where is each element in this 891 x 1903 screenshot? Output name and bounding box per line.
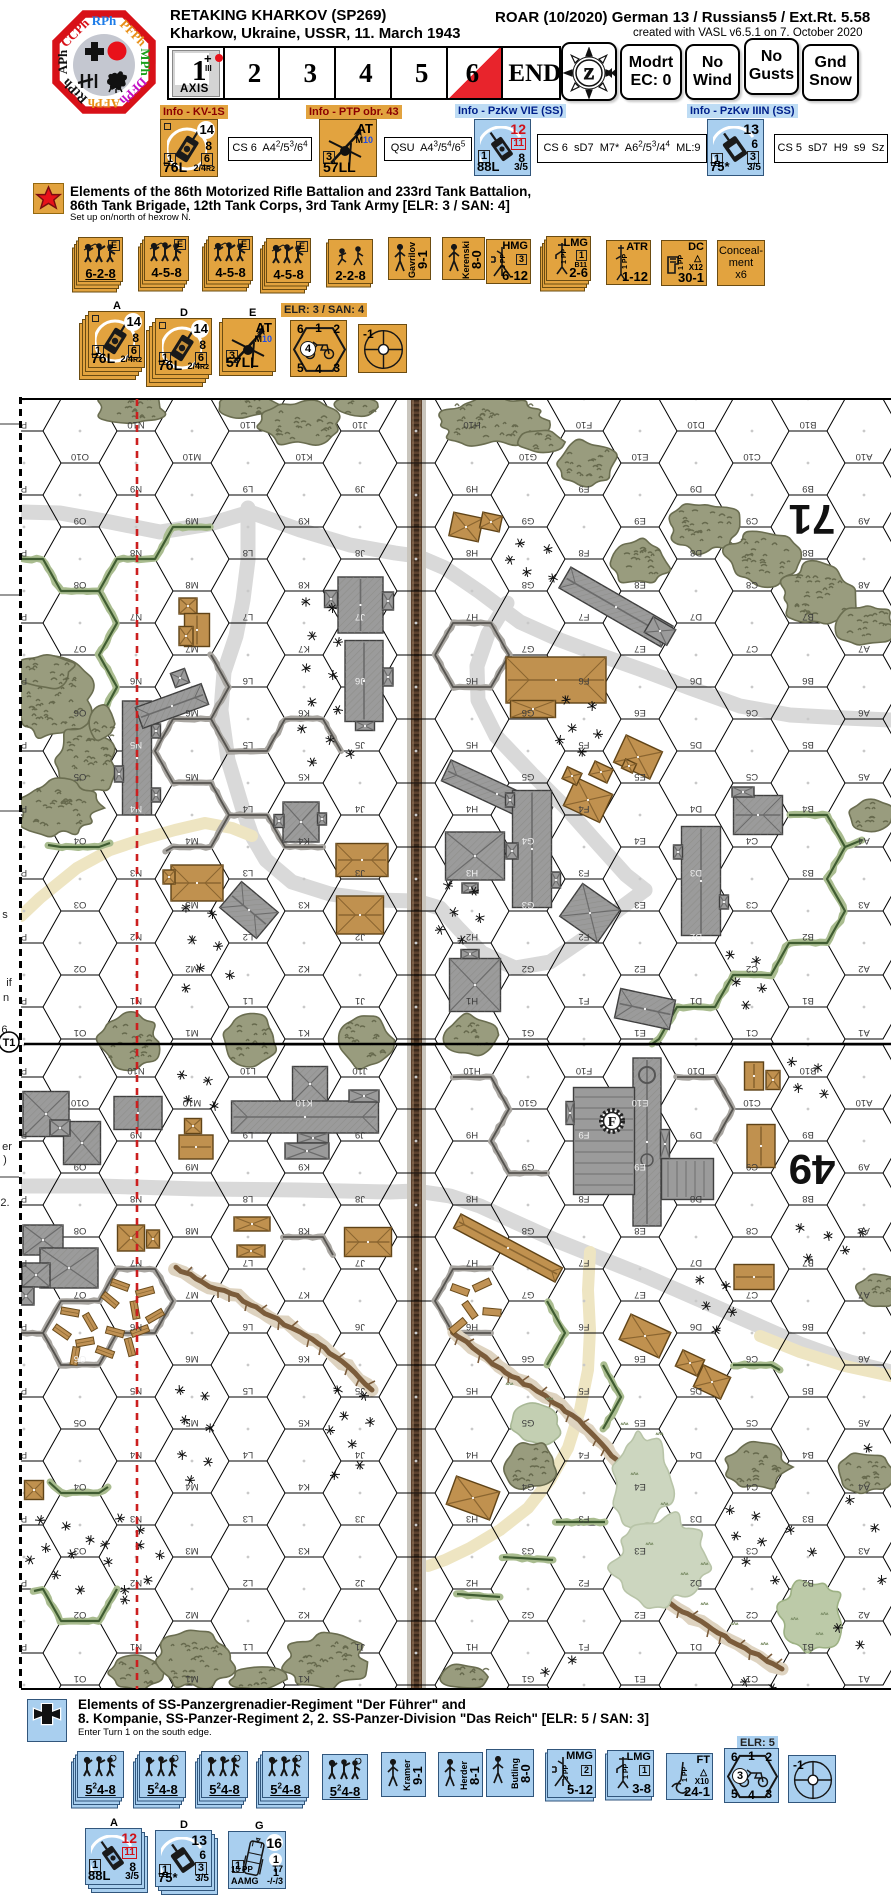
svg-text:H7: H7 [466, 1257, 478, 1268]
svg-text:H3: H3 [466, 1513, 478, 1524]
svg-text:K5: K5 [298, 771, 310, 782]
svg-text:K3: K3 [298, 1545, 310, 1556]
svg-text:J3: J3 [355, 867, 365, 878]
svg-text:H1: H1 [466, 1641, 478, 1652]
svg-text:2.: 2. [0, 1197, 9, 1209]
svg-text:C3: C3 [746, 899, 758, 910]
svg-text:L5: L5 [243, 1385, 254, 1396]
svg-text:A2: A2 [858, 1609, 870, 1620]
svg-text:H10: H10 [463, 419, 480, 430]
svg-text:K4: K4 [298, 1481, 310, 1492]
svg-text:s: s [2, 909, 8, 921]
svg-text:L2: L2 [243, 931, 254, 942]
svg-text:n: n [3, 992, 9, 1004]
svg-text:M5: M5 [185, 771, 198, 782]
svg-text:G5: G5 [522, 771, 535, 782]
svg-text:F8: F8 [578, 1193, 589, 1204]
svg-text:F3: F3 [578, 867, 589, 878]
svg-text:E2: E2 [634, 1609, 646, 1620]
svg-text:H9: H9 [466, 1129, 478, 1140]
svg-text:A6: A6 [858, 707, 870, 718]
svg-text:O7: O7 [74, 643, 87, 654]
svg-text:K4: K4 [298, 835, 310, 846]
svg-text:G1: G1 [522, 1673, 535, 1684]
svg-text:C5: C5 [746, 771, 758, 782]
svg-text:B5: B5 [802, 1385, 814, 1396]
svg-text:O1: O1 [74, 1673, 87, 1684]
svg-text:A8: A8 [858, 579, 870, 590]
svg-text:M1: M1 [185, 1673, 198, 1684]
svg-text:C7: C7 [746, 643, 758, 654]
svg-text:B7: B7 [802, 611, 814, 622]
svg-text:L4: L4 [243, 803, 254, 814]
svg-text:M3: M3 [185, 1545, 198, 1556]
svg-text:J2: J2 [355, 1577, 365, 1588]
svg-text:M10: M10 [183, 451, 201, 462]
svg-text:F10: F10 [576, 419, 592, 430]
svg-text:L10: L10 [240, 419, 256, 430]
svg-text:H8: H8 [466, 1193, 478, 1204]
svg-text:M8: M8 [185, 1225, 198, 1236]
svg-text:M9: M9 [185, 515, 198, 526]
svg-text:J10: J10 [352, 1065, 367, 1076]
svg-text:J7: J7 [355, 1257, 365, 1268]
svg-text:D1: D1 [690, 1641, 702, 1652]
svg-text:L7: L7 [243, 1257, 254, 1268]
svg-text:J1: J1 [355, 1641, 365, 1652]
svg-text:A8: A8 [858, 1225, 870, 1236]
svg-text:D6: D6 [690, 675, 702, 686]
svg-text:L8: L8 [243, 1193, 254, 1204]
svg-text:G3: G3 [522, 1545, 535, 1556]
svg-text:C4: C4 [746, 835, 758, 846]
svg-text:H2: H2 [466, 1577, 478, 1588]
svg-text:D10: D10 [687, 1065, 704, 1076]
svg-text:G7: G7 [522, 1289, 535, 1300]
svg-text:O2: O2 [74, 963, 87, 974]
svg-text:E8: E8 [634, 579, 646, 590]
svg-text:D9: D9 [690, 483, 702, 494]
svg-text:J5: J5 [355, 739, 365, 750]
svg-text:L2: L2 [243, 1577, 254, 1588]
svg-text:A5: A5 [858, 771, 870, 782]
svg-text:K2: K2 [298, 1609, 310, 1620]
svg-text:H7: H7 [466, 611, 478, 622]
svg-text:A3: A3 [858, 899, 870, 910]
svg-text:J9: J9 [355, 1129, 365, 1140]
svg-text:J8: J8 [355, 1193, 365, 1204]
svg-text:E10: E10 [632, 451, 649, 462]
svg-text:J2: J2 [355, 931, 365, 942]
svg-text:E6: E6 [634, 1353, 646, 1364]
svg-text:M2: M2 [185, 1609, 198, 1620]
svg-text:C2: C2 [746, 1609, 758, 1620]
svg-text:er: er [2, 1141, 12, 1153]
svg-text:if: if [6, 977, 12, 989]
svg-text:E1: E1 [634, 1673, 646, 1684]
svg-text:L10: L10 [240, 1065, 256, 1076]
svg-text:O8: O8 [74, 1225, 87, 1236]
svg-text:G10: G10 [519, 451, 537, 462]
svg-text:K1: K1 [298, 1673, 310, 1684]
svg-text:B9: B9 [802, 1129, 814, 1140]
svg-text:L8: L8 [243, 547, 254, 558]
svg-text:F6: F6 [578, 1321, 589, 1332]
svg-text:J5: J5 [355, 1385, 365, 1396]
svg-text:O6: O6 [74, 707, 87, 718]
svg-text:B8: B8 [802, 1193, 814, 1204]
svg-text:O1: O1 [74, 1027, 87, 1038]
svg-text:F4: F4 [578, 803, 589, 814]
svg-text:G4: G4 [522, 835, 535, 846]
svg-text:H5: H5 [466, 739, 478, 750]
svg-text:G5: G5 [522, 1417, 535, 1428]
svg-text:M7: M7 [185, 1289, 198, 1300]
svg-text:A1: A1 [858, 1673, 870, 1684]
svg-text:F2: F2 [578, 1577, 589, 1588]
svg-text:E7: E7 [634, 1289, 646, 1300]
svg-text:K5: K5 [298, 1417, 310, 1428]
svg-text:K10: K10 [296, 451, 313, 462]
svg-text:O10: O10 [71, 451, 89, 462]
svg-text:G6: G6 [522, 707, 535, 718]
svg-text:E10: E10 [632, 1097, 649, 1108]
svg-text:D5: D5 [690, 1385, 702, 1396]
svg-text:H4: H4 [466, 803, 478, 814]
svg-text:A9: A9 [858, 515, 870, 526]
svg-text:L1: L1 [243, 1641, 254, 1652]
svg-text:B9: B9 [802, 483, 814, 494]
svg-text:F: F [608, 1115, 617, 1130]
svg-text:O9: O9 [74, 515, 87, 526]
svg-text:C8: C8 [746, 579, 758, 590]
svg-text:D6: D6 [690, 1321, 702, 1332]
svg-text:G2: G2 [522, 963, 535, 974]
svg-text:71: 71 [789, 496, 836, 543]
svg-text:F5: F5 [578, 739, 589, 750]
svg-text:D5: D5 [690, 739, 702, 750]
svg-text:E3: E3 [634, 899, 646, 910]
svg-text:F9: F9 [578, 483, 589, 494]
svg-text:J9: J9 [355, 483, 365, 494]
svg-text:D7: D7 [690, 611, 702, 622]
svg-text:C4: C4 [746, 1481, 758, 1492]
svg-text:K6: K6 [298, 707, 310, 718]
svg-text:C1: C1 [746, 1673, 758, 1684]
svg-text:G3: G3 [522, 899, 535, 910]
svg-text:6.: 6. [1, 1024, 10, 1036]
svg-text:B1: B1 [802, 995, 814, 1006]
svg-text:D2: D2 [690, 931, 702, 942]
svg-text:49: 49 [789, 1146, 836, 1193]
svg-text:M6: M6 [185, 707, 198, 718]
svg-text:C10: C10 [743, 1097, 760, 1108]
svg-text:K8: K8 [298, 1225, 310, 1236]
svg-text:L9: L9 [243, 483, 254, 494]
svg-text:A10: A10 [856, 451, 873, 462]
svg-text:B3: B3 [802, 1513, 814, 1524]
svg-text:D1: D1 [690, 995, 702, 1006]
svg-text:L1: L1 [243, 995, 254, 1006]
svg-text:O3: O3 [74, 1545, 87, 1556]
svg-text:D7: D7 [690, 1257, 702, 1268]
svg-text:E4: E4 [634, 1481, 646, 1492]
svg-text:C5: C5 [746, 1417, 758, 1428]
svg-text:A1: A1 [858, 1027, 870, 1038]
svg-text:K2: K2 [298, 963, 310, 974]
svg-text:G2: G2 [522, 1609, 535, 1620]
svg-text:H3: H3 [466, 867, 478, 878]
svg-text:C10: C10 [743, 451, 760, 462]
svg-text:K6: K6 [298, 1353, 310, 1364]
svg-text:A3: A3 [858, 1545, 870, 1556]
svg-text:O4: O4 [74, 835, 87, 846]
svg-text:K7: K7 [298, 643, 310, 654]
svg-text:F7: F7 [578, 611, 589, 622]
svg-text:A4: A4 [858, 835, 870, 846]
svg-text:E2: E2 [634, 963, 646, 974]
svg-text:F6: F6 [578, 675, 589, 686]
svg-text:H1: H1 [466, 995, 478, 1006]
svg-text:B2: B2 [802, 931, 814, 942]
svg-text:F1: F1 [578, 995, 589, 1006]
svg-text:G8: G8 [522, 1225, 535, 1236]
svg-text:D8: D8 [690, 1193, 702, 1204]
svg-text:G6: G6 [522, 1353, 535, 1364]
svg-text:A5: A5 [858, 1417, 870, 1428]
svg-text:A7: A7 [858, 643, 870, 654]
svg-text:F1: F1 [578, 1641, 589, 1652]
svg-text:D8: D8 [690, 547, 702, 558]
svg-text:H9: H9 [466, 483, 478, 494]
svg-text:M10: M10 [183, 1097, 201, 1108]
svg-text:J3: J3 [355, 1513, 365, 1524]
svg-text:J4: J4 [355, 1449, 365, 1460]
svg-text:M6: M6 [185, 1353, 198, 1364]
svg-text:F4: F4 [578, 1449, 589, 1460]
svg-text:K1: K1 [298, 1027, 310, 1038]
svg-text:B4: B4 [802, 1449, 814, 1460]
svg-text:M3: M3 [185, 899, 198, 910]
svg-text:E1: E1 [634, 1027, 646, 1038]
svg-text:M2: M2 [185, 963, 198, 974]
svg-text:G10: G10 [519, 1097, 537, 1108]
svg-text:F7: F7 [578, 1257, 589, 1268]
svg-text:M1: M1 [185, 1027, 198, 1038]
svg-text:): ) [3, 1154, 7, 1166]
svg-text:D10: D10 [687, 419, 704, 430]
svg-text:M4: M4 [185, 835, 198, 846]
svg-text:E4: E4 [634, 835, 646, 846]
svg-text:C6: C6 [746, 1353, 758, 1364]
svg-text:C8: C8 [746, 1225, 758, 1236]
svg-text:E6: E6 [634, 707, 646, 718]
svg-text:H10: H10 [463, 1065, 480, 1076]
svg-text:G9: G9 [522, 1161, 535, 1172]
svg-text:O5: O5 [74, 771, 87, 782]
svg-text:B4: B4 [802, 803, 814, 814]
svg-text:C2: C2 [746, 963, 758, 974]
svg-text:A6: A6 [858, 1353, 870, 1364]
svg-text:L5: L5 [243, 739, 254, 750]
svg-text:L3: L3 [243, 867, 254, 878]
svg-text:L7: L7 [243, 611, 254, 622]
svg-text:E9: E9 [634, 1161, 646, 1172]
svg-text:H5: H5 [466, 1385, 478, 1396]
svg-text:E8: E8 [634, 1225, 646, 1236]
svg-text:B10: B10 [800, 419, 817, 430]
svg-text:J1: J1 [355, 995, 365, 1006]
svg-text:B7: B7 [802, 1257, 814, 1268]
svg-text:K10: K10 [296, 1097, 313, 1108]
svg-text:A7: A7 [858, 1289, 870, 1300]
svg-text:J8: J8 [355, 547, 365, 558]
svg-text:B1: B1 [802, 1641, 814, 1652]
svg-text:T1: T1 [3, 1037, 16, 1049]
svg-text:L6: L6 [243, 1321, 254, 1332]
svg-text:H2: H2 [466, 931, 478, 942]
svg-text:E9: E9 [634, 515, 646, 526]
svg-text:A10: A10 [856, 1097, 873, 1108]
svg-text:D4: D4 [690, 803, 702, 814]
svg-text:J6: J6 [355, 675, 365, 686]
svg-text:C1: C1 [746, 1027, 758, 1038]
svg-text:J6: J6 [355, 1321, 365, 1332]
svg-text:O6: O6 [74, 1353, 87, 1364]
svg-text:F8: F8 [578, 547, 589, 558]
svg-text:E5: E5 [634, 1417, 646, 1428]
svg-text:L3: L3 [243, 1513, 254, 1524]
svg-text:F9: F9 [578, 1129, 589, 1140]
svg-text:M7: M7 [185, 643, 198, 654]
svg-text:D3: D3 [690, 867, 702, 878]
svg-text:D3: D3 [690, 1513, 702, 1524]
svg-text:O7: O7 [74, 1289, 87, 1300]
svg-text:J4: J4 [355, 803, 365, 814]
svg-text:G8: G8 [522, 579, 535, 590]
svg-text:B10: B10 [800, 1065, 817, 1076]
svg-text:F3: F3 [578, 1513, 589, 1524]
svg-text:K9: K9 [298, 1161, 310, 1172]
svg-text:D9: D9 [690, 1129, 702, 1140]
svg-text:F10: F10 [576, 1065, 592, 1076]
svg-text:D2: D2 [690, 1577, 702, 1588]
svg-text:F2: F2 [578, 931, 589, 942]
svg-text:K8: K8 [298, 579, 310, 590]
svg-text:C3: C3 [746, 1545, 758, 1556]
svg-text:C9: C9 [746, 515, 758, 526]
svg-text:M4: M4 [185, 1481, 198, 1492]
svg-text:J7: J7 [355, 611, 365, 622]
svg-text:B6: B6 [802, 1321, 814, 1332]
svg-text:B3: B3 [802, 867, 814, 878]
svg-text:O8: O8 [74, 579, 87, 590]
svg-text:M8: M8 [185, 579, 198, 590]
svg-text:M5: M5 [185, 1417, 198, 1428]
svg-text:C7: C7 [746, 1289, 758, 1300]
svg-text:B2: B2 [802, 1577, 814, 1588]
svg-text:J10: J10 [352, 419, 367, 430]
svg-text:C9: C9 [746, 1161, 758, 1172]
svg-text:E5: E5 [634, 771, 646, 782]
svg-text:O4: O4 [74, 1481, 87, 1492]
svg-text:H6: H6 [466, 1321, 478, 1332]
svg-text:L9: L9 [243, 1129, 254, 1140]
svg-text:L6: L6 [243, 675, 254, 686]
svg-text:O3: O3 [74, 899, 87, 910]
svg-text:D4: D4 [690, 1449, 702, 1460]
svg-text:H6: H6 [466, 675, 478, 686]
svg-text:O5: O5 [74, 1417, 87, 1428]
svg-text:O9: O9 [74, 1161, 87, 1172]
svg-text:O10: O10 [71, 1097, 89, 1108]
svg-text:O2: O2 [74, 1609, 87, 1620]
svg-text:F5: F5 [578, 1385, 589, 1396]
svg-text:K9: K9 [298, 515, 310, 526]
svg-text:K7: K7 [298, 1289, 310, 1300]
svg-text:B5: B5 [802, 739, 814, 750]
svg-text:G7: G7 [522, 643, 535, 654]
svg-text:M9: M9 [185, 1161, 198, 1172]
svg-text:B6: B6 [802, 675, 814, 686]
svg-text:A4: A4 [858, 1481, 870, 1492]
svg-text:L4: L4 [243, 1449, 254, 1460]
svg-text:E7: E7 [634, 643, 646, 654]
svg-text:A9: A9 [858, 1161, 870, 1172]
svg-text:G1: G1 [522, 1027, 535, 1038]
svg-text:G4: G4 [522, 1481, 535, 1492]
svg-text:A2: A2 [858, 963, 870, 974]
svg-text:E3: E3 [634, 1545, 646, 1556]
svg-text:B8: B8 [802, 547, 814, 558]
svg-text:G9: G9 [522, 515, 535, 526]
svg-text:C6: C6 [746, 707, 758, 718]
svg-text:K3: K3 [298, 899, 310, 910]
svg-text:H8: H8 [466, 547, 478, 558]
svg-text:H4: H4 [466, 1449, 478, 1460]
